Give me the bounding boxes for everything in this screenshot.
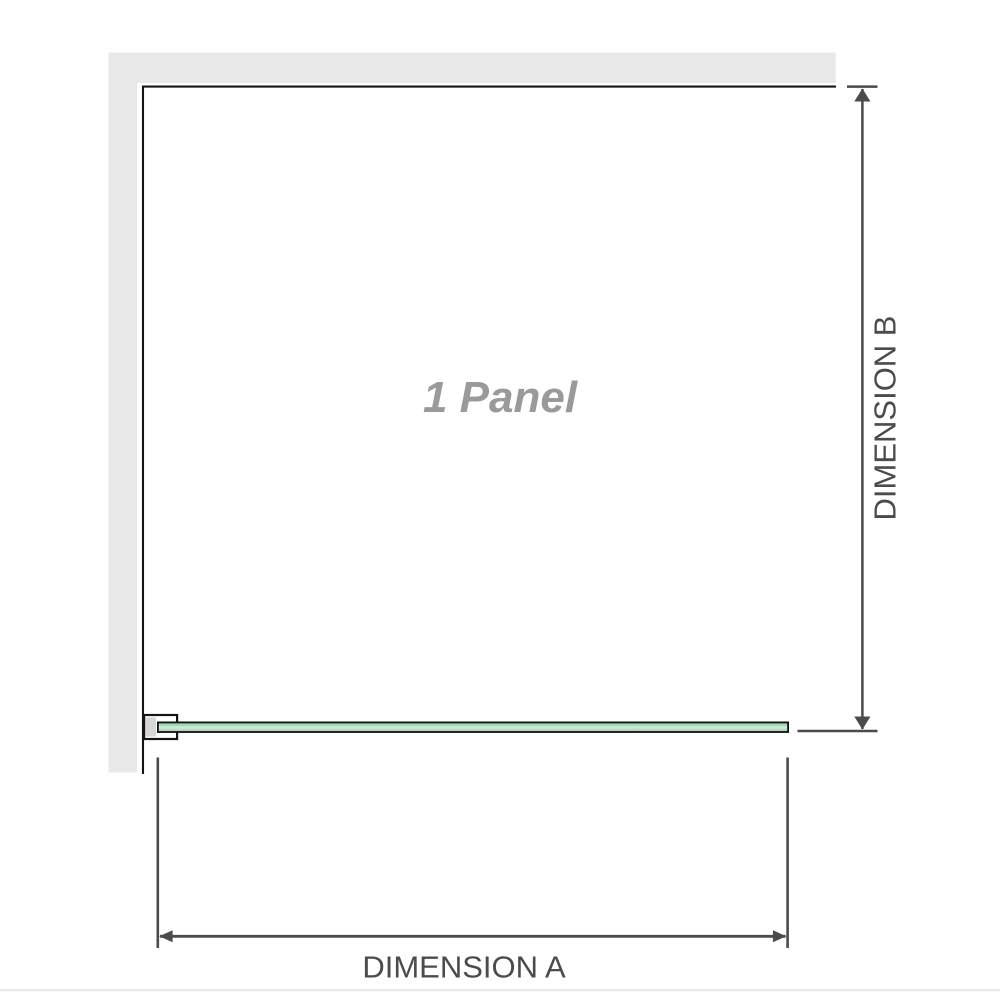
svg-text:DIMENSION A: DIMENSION A	[362, 950, 566, 985]
svg-text:1 Panel: 1 Panel	[423, 373, 578, 422]
svg-text:DIMENSION B: DIMENSION B	[868, 316, 903, 521]
